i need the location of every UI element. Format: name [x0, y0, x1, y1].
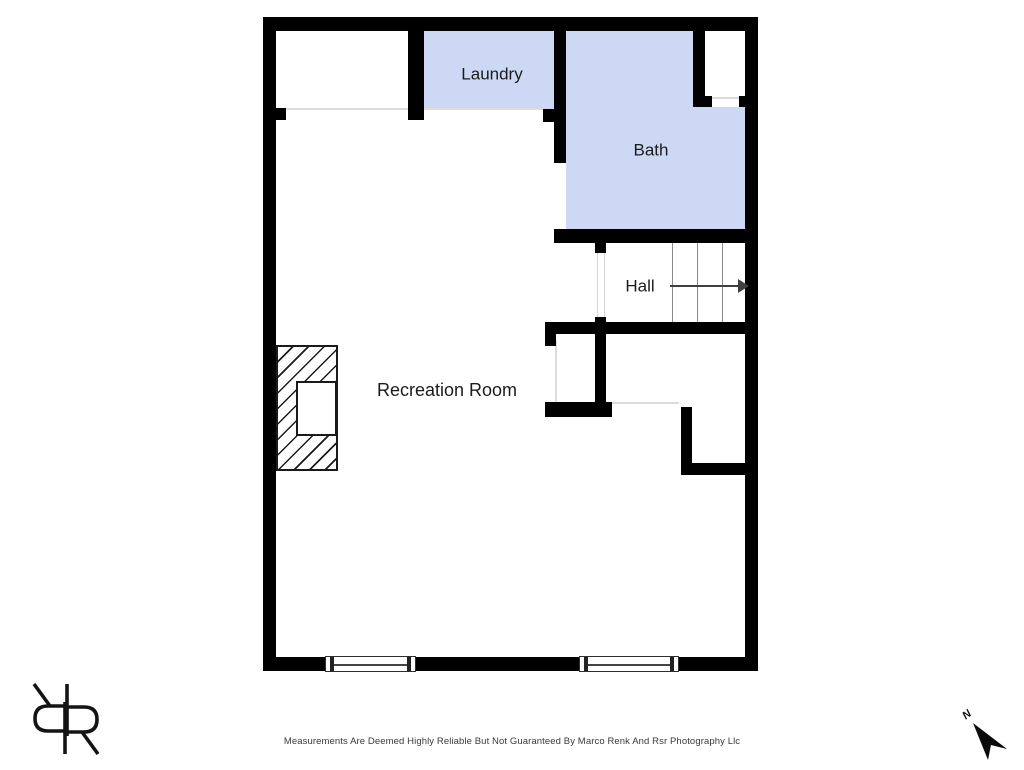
passage-opening-line [611, 402, 679, 404]
wall-stub-under-laundry [543, 109, 566, 122]
bath-closet-door-line [712, 97, 739, 99]
wall-outer-right [745, 17, 758, 671]
rr-monogram-icon [28, 678, 120, 760]
wall-stub-hall-bottom-left [545, 322, 556, 346]
hall-door-jamb-left [597, 253, 598, 317]
wall-stub-closet-a [705, 96, 712, 107]
window [579, 656, 679, 672]
wall-bath-bottom [554, 229, 758, 243]
window-pane-line [334, 664, 407, 666]
wall-alcove-horizontal [681, 463, 758, 475]
fireplace-firebox [296, 381, 337, 436]
window-frame-bar [407, 657, 411, 671]
opening-line-under-storage [286, 108, 408, 110]
bath-room-fill-upper [566, 31, 693, 107]
rr-monogram-logo [28, 678, 120, 760]
room-label-hall: Hall [625, 278, 654, 295]
north-arrow: N [952, 703, 1014, 765]
floorplan-page: { "rooms": { "laundry": { "label": "Laun… [0, 0, 1024, 768]
wall-hall-bottom [545, 322, 758, 334]
wall-closet-bottom [545, 402, 612, 417]
opening-line-under-laundry [424, 108, 543, 110]
room-label-recreation: Recreation Room [377, 381, 517, 399]
wall-stub-hall-top [595, 243, 606, 253]
wall-stub-closet-b [739, 96, 745, 107]
wall-outer-top [263, 17, 758, 31]
closet-opening-line [555, 340, 557, 402]
stair-tread-line [722, 243, 723, 322]
hall-door-jamb-right [604, 253, 605, 317]
stair-tread-line [697, 243, 698, 322]
disclaimer-text: Measurements Are Deemed Highly Reliable … [0, 736, 1024, 747]
wall-outer-left [263, 17, 276, 671]
wall-stub-storage-left [276, 108, 286, 120]
stair-direction-arrow [670, 285, 740, 287]
room-label-bath: Bath [634, 142, 669, 159]
floorplan: Laundry Bath Hall Recreation Room [0, 0, 1024, 768]
wall-bath-closet-left [693, 31, 705, 107]
bath-room-fill-lower [566, 107, 745, 230]
stair-tread-line [672, 243, 673, 322]
stair-arrow-head-icon [738, 279, 749, 293]
window [325, 656, 416, 672]
wall-storage-laundry [408, 31, 424, 120]
wall-laundry-bath [554, 31, 566, 163]
window-frame-bar [670, 657, 674, 671]
room-label-laundry: Laundry [461, 66, 522, 83]
window-pane-line [588, 664, 670, 666]
